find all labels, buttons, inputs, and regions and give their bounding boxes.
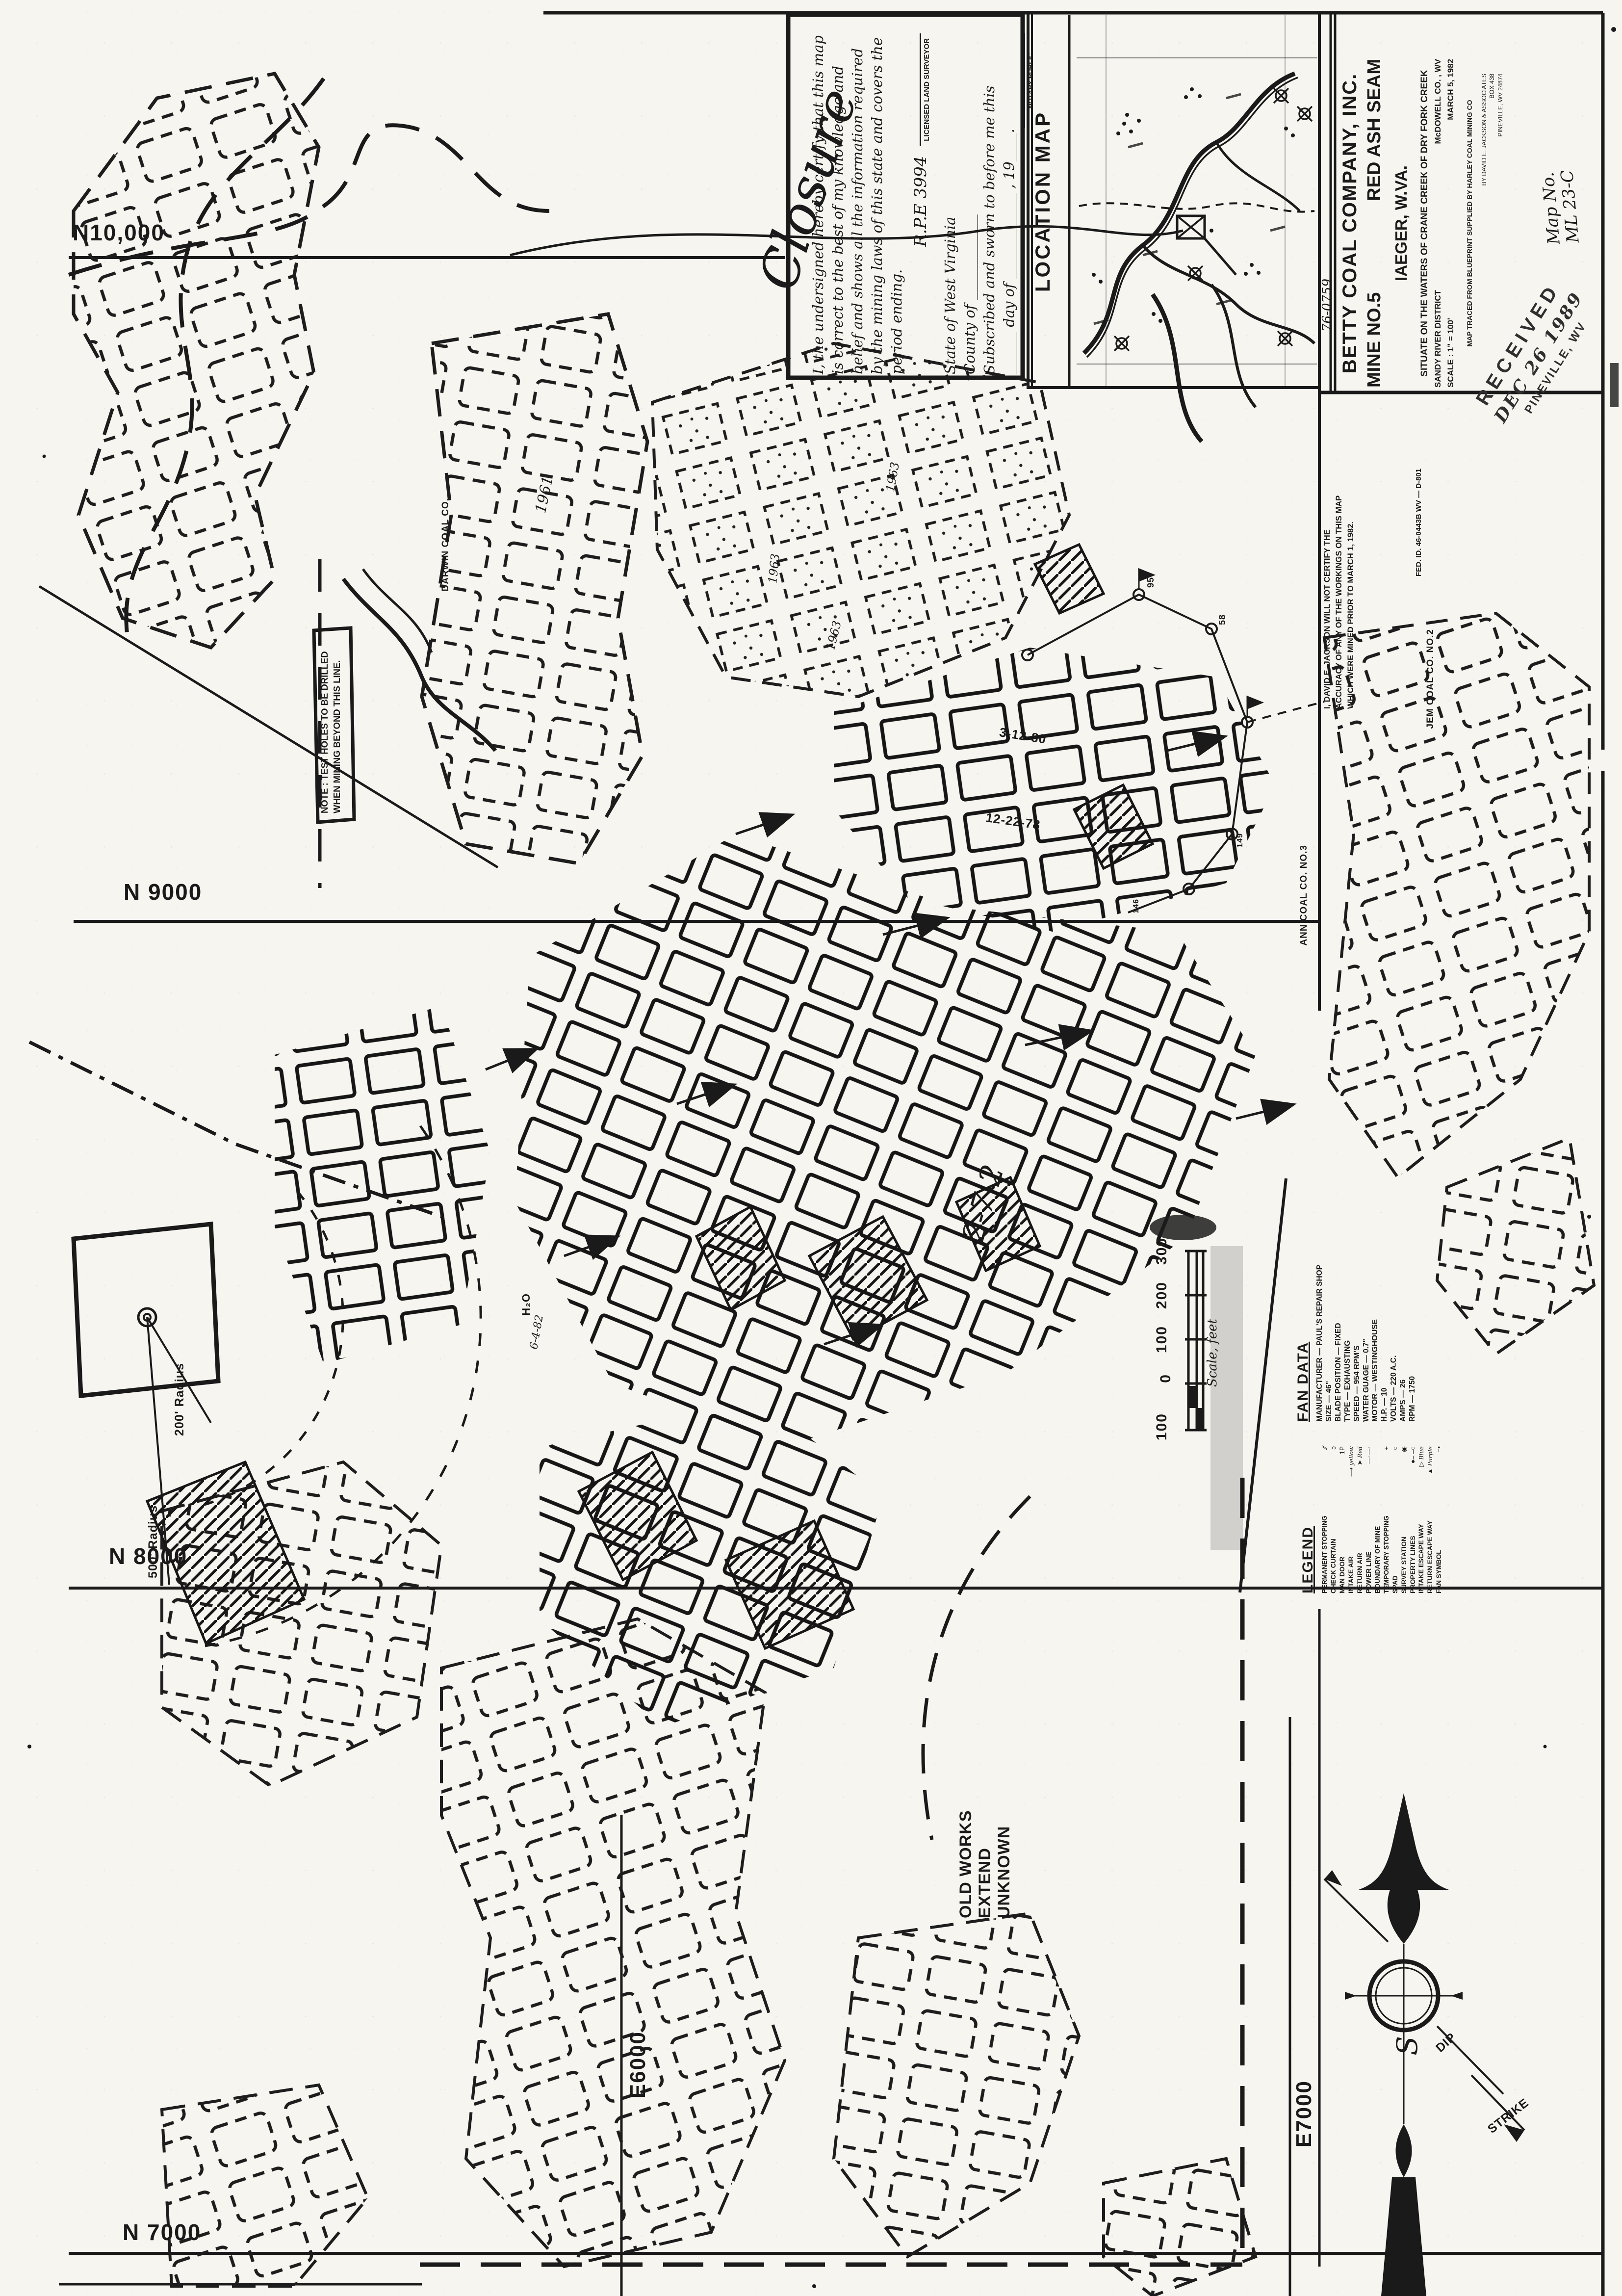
company-name: BETTY COAL COMPANY, INC. [1339,59,1361,388]
map-annotation: 58 [1217,614,1228,625]
map-scale: SCALE : 1" = 100' [1446,318,1456,388]
map-annotation: 200' Radius [173,1363,187,1436]
county-line: County of ____________ [960,33,979,374]
legend-title: LEGEND [1300,1446,1316,1593]
map-annotation: 100 [1154,1326,1171,1353]
fan-data-item: SPEED — 954 RPM'S [1353,1211,1362,1422]
certification-block: I, the undersigned hereby certify that t… [808,33,1035,374]
sworn-line1: Subscribed and sworn to before me this [979,33,999,374]
legend-symbol-icon: ⟶ yellow [1347,1446,1356,1481]
map-annotation: 149 [1236,833,1245,848]
map-annotation: 146 [1132,899,1141,913]
scanned-mine-map-sheet: BETTY COAL COMPANY, INC. MINE NO.5 RED A… [0,0,1622,2296]
fan-data-title: FAN DATA [1295,1211,1312,1422]
legend-item: SURVEY STATION ◉ [1400,1446,1409,1593]
map-annotation: N [1391,1894,1424,1919]
legend-item: MAN DOOR 1P [1338,1446,1347,1593]
state-line: State of West Virginia [940,33,960,374]
legend-list: PERMANENT STOPPING ∕∕ CHECK CURTAIN ↄ MA… [1320,1446,1443,1593]
fan-data-block: FAN DATA MANUFACTURER — PAUL'S REPAIR SH… [1295,1211,1417,1422]
fan-data-item: WATER GUAGE — 0.7" [1362,1211,1371,1422]
legend-symbol-icon: —·—· [1365,1446,1373,1468]
fan-data-list: MANUFACTURER — PAUL'S REPAIR SHOP SIZE —… [1315,1211,1417,1422]
mine-number: MINE NO.5 [1364,292,1385,388]
map-annotation: 500' Radius [146,1505,160,1578]
compass-rose [1324,1793,1524,2296]
map-annotation: 300 [1154,1237,1171,1265]
map-annotation: N 9000 [124,879,202,905]
map-annotation: Map No. ML 23-C [1538,165,1583,245]
situate-line: SITUATE ON THE WATERS OF CRANE CREEK OF … [1419,59,1430,388]
legend-symbol-icon: ▲ Purple [1426,1446,1435,1478]
disclaimer-block: I, DAVID E. JACKSON WILL NOT CERTIFY THE… [1322,483,1357,709]
license-caption: LICENSED LAND SURVEYOR [920,33,932,146]
map-annotation: E7000 [1292,2080,1317,2147]
rpe-number: R.P.E 3994 [909,156,932,247]
district: SANDY RIVER DISTRICT [1433,290,1443,388]
map-date: MARCH 5, 1982 [1446,59,1456,120]
fed-id-block: FED. ID. 46-0443B WV — D-801 [1414,464,1425,576]
fan-data-item: MOTOR — WESTINGHOUSE [1371,1211,1380,1422]
location-map-content [1077,15,1317,387]
legend-symbol-icon: ◉ [1400,1446,1409,1456]
fan-data-item: RPM — 1750 [1408,1211,1417,1422]
legend-item: INTAKE ESCAPE WAY ▷ Blue [1417,1446,1426,1593]
portal-symbol [1153,216,1256,442]
legend-symbol-icon: + [1382,1446,1391,1454]
title-block: BETTY COAL COMPANY, INC. MINE NO.5 RED A… [1339,59,1504,388]
legend-block: LEGEND PERMANENT STOPPING ∕∕ CHECK CURTA… [1300,1446,1443,1593]
legend-symbol-icon: ∕∕ [1320,1446,1329,1453]
place-name: IAEGER, W.VA. [1392,59,1411,388]
legend-item: INTAKE AIR ⟶ yellow [1347,1446,1356,1593]
legend-symbol-icon: ▷ Blue [1417,1446,1426,1471]
fan-data-item: MANUFACTURER — PAUL'S REPAIR SHOP [1315,1211,1325,1422]
map-annotation: 95 [1146,577,1156,588]
legend-item: PERMANENT STOPPING ∕∕ [1320,1446,1329,1593]
legend-item: RETURN ESCAPE WAY ▲ Purple [1426,1446,1435,1593]
map-annotation: Scale, feet [1206,1319,1220,1387]
legend-symbol-icon: ○ [1391,1446,1400,1454]
map-annotation: JEM COAL CO. NO.2 [1425,629,1436,729]
map-annotation: DARWIN COAL CO. [440,498,451,592]
fan-data-item: VOLTS — 220 A.C. [1390,1211,1399,1422]
legend-symbol-icon: ➤ Red [1356,1446,1365,1469]
county: McDOWELL CO. , WV [1433,59,1443,144]
legend-item: CHECK CURTAIN ↄ [1329,1446,1338,1593]
legend-item: BOUNDARY OF MINE — — [1373,1446,1382,1593]
map-annotation: 100 [1154,1413,1171,1440]
sworn-line2: ______ day of ____________ , 19____. [999,33,1019,374]
fan-data-item: H.P. — 10 [1380,1211,1390,1422]
map-annotation: ANN COAL CO. NO.3 [1299,845,1310,946]
map-annotation: E6000 [626,2031,651,2098]
legend-symbol-icon: ↄ [1329,1446,1338,1454]
legend-symbol-icon: — — [1373,1446,1382,1465]
map-annotation: N 7000 [123,2219,201,2245]
legend-symbol-icon: ⌐▪ [1435,1446,1443,1457]
legend-item: TEMPORARY STOPPING + [1382,1446,1391,1593]
map-annotation: 200 [1154,1281,1171,1309]
map-annotation: 76-0759 [1320,279,1335,332]
legend-item: PROPERTY LINES ●– –○ [1409,1446,1417,1593]
traced-note: MAP TRACED FROM BLUEPRINT SUPPLIED BY HA… [1466,59,1473,388]
prepared-by: BY DAVID E. JACKSON & ASSOCIATES BOX 438… [1480,59,1504,388]
legend-symbol-icon: 1P [1338,1446,1347,1459]
note-box-text: NOTE : TEST HOLES TO BE DRILLED WHEN MIN… [319,637,343,813]
fan-data-item: AMPS — 26 [1399,1211,1408,1422]
map-annotation: OLD WORKS EXTEND UNKNOWN [956,1761,1014,1918]
legend-item: FAN SYMBOL ⌐▪ [1435,1446,1443,1593]
location-map-title: LOCATION MAP [1031,19,1055,384]
map-annotation: 0 [1158,1374,1175,1383]
fan-data-item: TYPE — EXHAUSTING [1343,1211,1353,1422]
fan-data-item: BLADE POSITION — FIXED [1334,1211,1343,1422]
legend-item: RETURN AIR ➤ Red [1356,1446,1365,1593]
legend-symbol-icon: ●– –○ [1409,1446,1417,1467]
map-annotation: H₂O [520,1293,532,1316]
legend-item: POWER LINE —·—· [1365,1446,1373,1593]
map-annotation: N10,000 [73,220,165,246]
fan-data-item: SIZE — 46" [1325,1211,1334,1422]
seam-name: RED ASH SEAM [1364,59,1385,201]
map-annotation: S [1391,2036,1424,2056]
legend-item: SPAD ○ [1391,1446,1400,1593]
